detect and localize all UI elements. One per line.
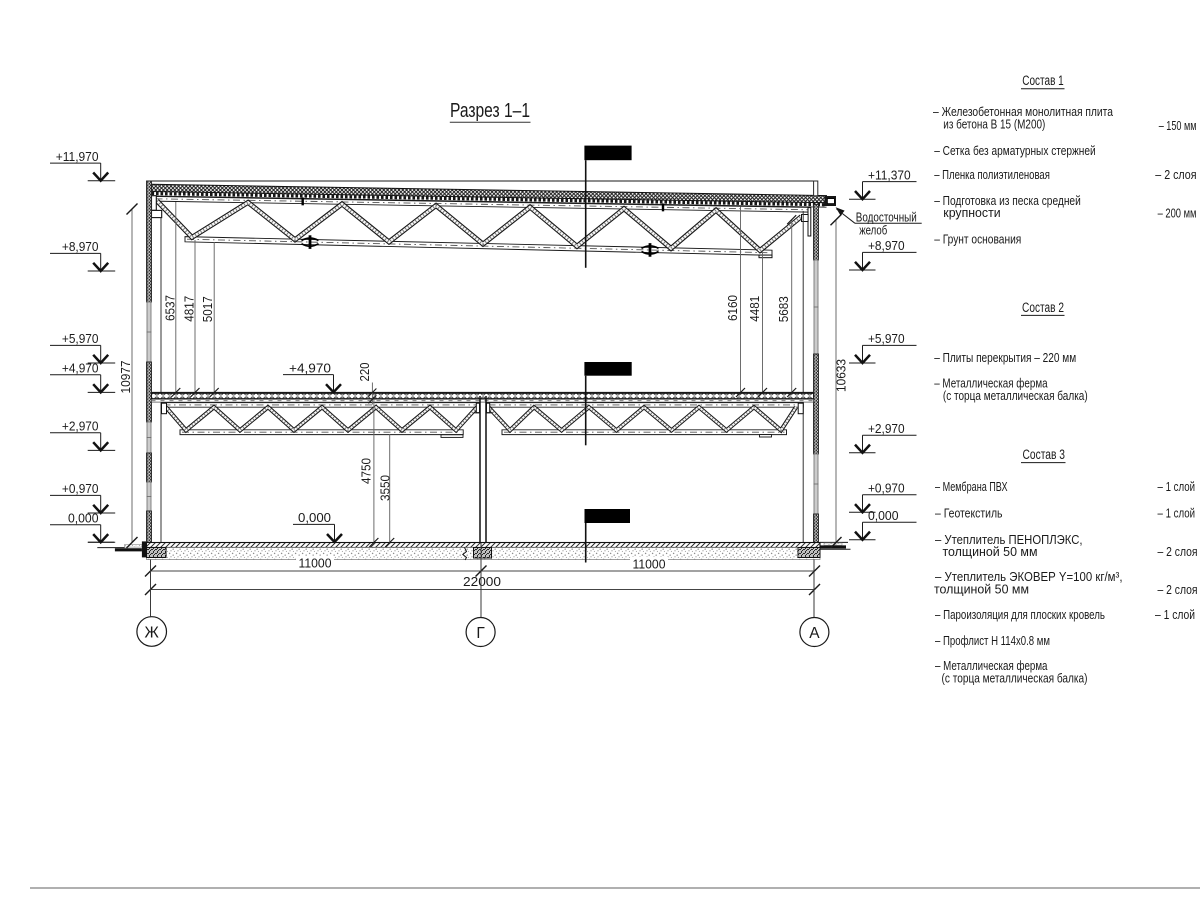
svg-text:+8,970: +8,970 xyxy=(62,239,99,254)
svg-text:0,000: 0,000 xyxy=(298,510,331,525)
svg-text:Состав 3: Состав 3 xyxy=(1023,447,1066,462)
svg-text:толщиной 50 мм: толщиной 50 мм xyxy=(943,544,1038,559)
svg-text:– Геотекстиль: – Геотекстиль xyxy=(935,506,1003,521)
svg-text:+2,970: +2,970 xyxy=(868,421,905,436)
svg-text:– Сетка без арматурных стержне: – Сетка без арматурных стержней xyxy=(934,143,1095,158)
svg-text:– Мембрана ПВХ: – Мембрана ПВХ xyxy=(935,479,1008,494)
svg-text:+4,970: +4,970 xyxy=(62,361,99,376)
svg-text:– Пароизоляция для плоских кро: – Пароизоляция для плоских кровель xyxy=(935,607,1105,622)
svg-text:5683: 5683 xyxy=(777,296,791,322)
svg-text:А: А xyxy=(809,625,820,642)
svg-text:+8,970: +8,970 xyxy=(868,238,905,253)
svg-text:– Профлист Н 114х0.8 мм: – Профлист Н 114х0.8 мм xyxy=(935,633,1050,648)
svg-text:0,000: 0,000 xyxy=(868,508,899,523)
svg-text:толщиной 50 мм: толщиной 50 мм xyxy=(934,582,1029,597)
svg-text:– 2 слоя: – 2 слоя xyxy=(1158,582,1198,597)
svg-text:4481: 4481 xyxy=(748,296,762,322)
svg-text:+5,970: +5,970 xyxy=(62,331,99,346)
svg-text:крупности: крупности xyxy=(943,205,1000,220)
svg-text:– Пленка полиэтиленовая: – Пленка полиэтиленовая xyxy=(934,167,1050,182)
svg-text:+5,970: +5,970 xyxy=(868,331,905,346)
svg-text:– 2 слоя: – 2 слоя xyxy=(1155,167,1196,182)
svg-text:– Плиты перекрытия – 220 мм: – Плиты перекрытия – 220 мм xyxy=(934,350,1076,365)
svg-text:+0,970: +0,970 xyxy=(868,481,905,496)
svg-text:5017: 5017 xyxy=(201,296,215,322)
svg-text:– 1 слой: – 1 слой xyxy=(1158,479,1196,494)
svg-text:3550: 3550 xyxy=(379,475,393,501)
svg-text:желоб: желоб xyxy=(859,222,887,237)
svg-text:6160: 6160 xyxy=(726,295,740,321)
svg-text:11000: 11000 xyxy=(299,556,332,571)
svg-text:+11,370: +11,370 xyxy=(868,167,911,182)
svg-text:– 1 слой: – 1 слой xyxy=(1155,607,1195,622)
svg-text:Состав 1: Состав 1 xyxy=(1022,73,1064,88)
svg-text:22000: 22000 xyxy=(463,574,501,589)
svg-text:Состав 2: Состав 2 xyxy=(1022,300,1064,315)
svg-text:10977: 10977 xyxy=(119,360,133,393)
svg-text:+11,970: +11,970 xyxy=(56,149,99,164)
svg-text:0,000: 0,000 xyxy=(68,511,99,526)
svg-text:6537: 6537 xyxy=(164,295,178,321)
svg-text:– 1 слой: – 1 слой xyxy=(1158,506,1196,521)
svg-text:Г: Г xyxy=(476,625,485,642)
svg-text:– Грунт основания: – Грунт основания xyxy=(934,231,1021,246)
svg-text:+2,970: +2,970 xyxy=(62,419,99,434)
svg-text:4817: 4817 xyxy=(183,296,197,322)
svg-text:Разрез 1–1: Разрез 1–1 xyxy=(450,100,530,122)
svg-text:Ж: Ж xyxy=(145,624,160,641)
svg-text:– 150 мм: – 150 мм xyxy=(1159,118,1197,133)
svg-text:220: 220 xyxy=(358,362,372,381)
svg-text:(с торца металлическая балка): (с торца металлическая балка) xyxy=(943,388,1088,403)
svg-text:– 200 мм: – 200 мм xyxy=(1158,206,1197,221)
svg-text:– 2 слоя: – 2 слоя xyxy=(1158,544,1198,559)
svg-text:+0,970: +0,970 xyxy=(62,481,99,496)
svg-text:+4,970: +4,970 xyxy=(289,360,331,375)
svg-text:11000: 11000 xyxy=(633,557,666,572)
svg-text:10633: 10633 xyxy=(835,359,849,392)
svg-text:из бетона В 15 (М200): из бетона В 15 (М200) xyxy=(943,117,1045,132)
svg-text:(с торца металлическая балка): (с торца металлическая балка) xyxy=(942,671,1088,686)
svg-text:4750: 4750 xyxy=(360,458,374,484)
